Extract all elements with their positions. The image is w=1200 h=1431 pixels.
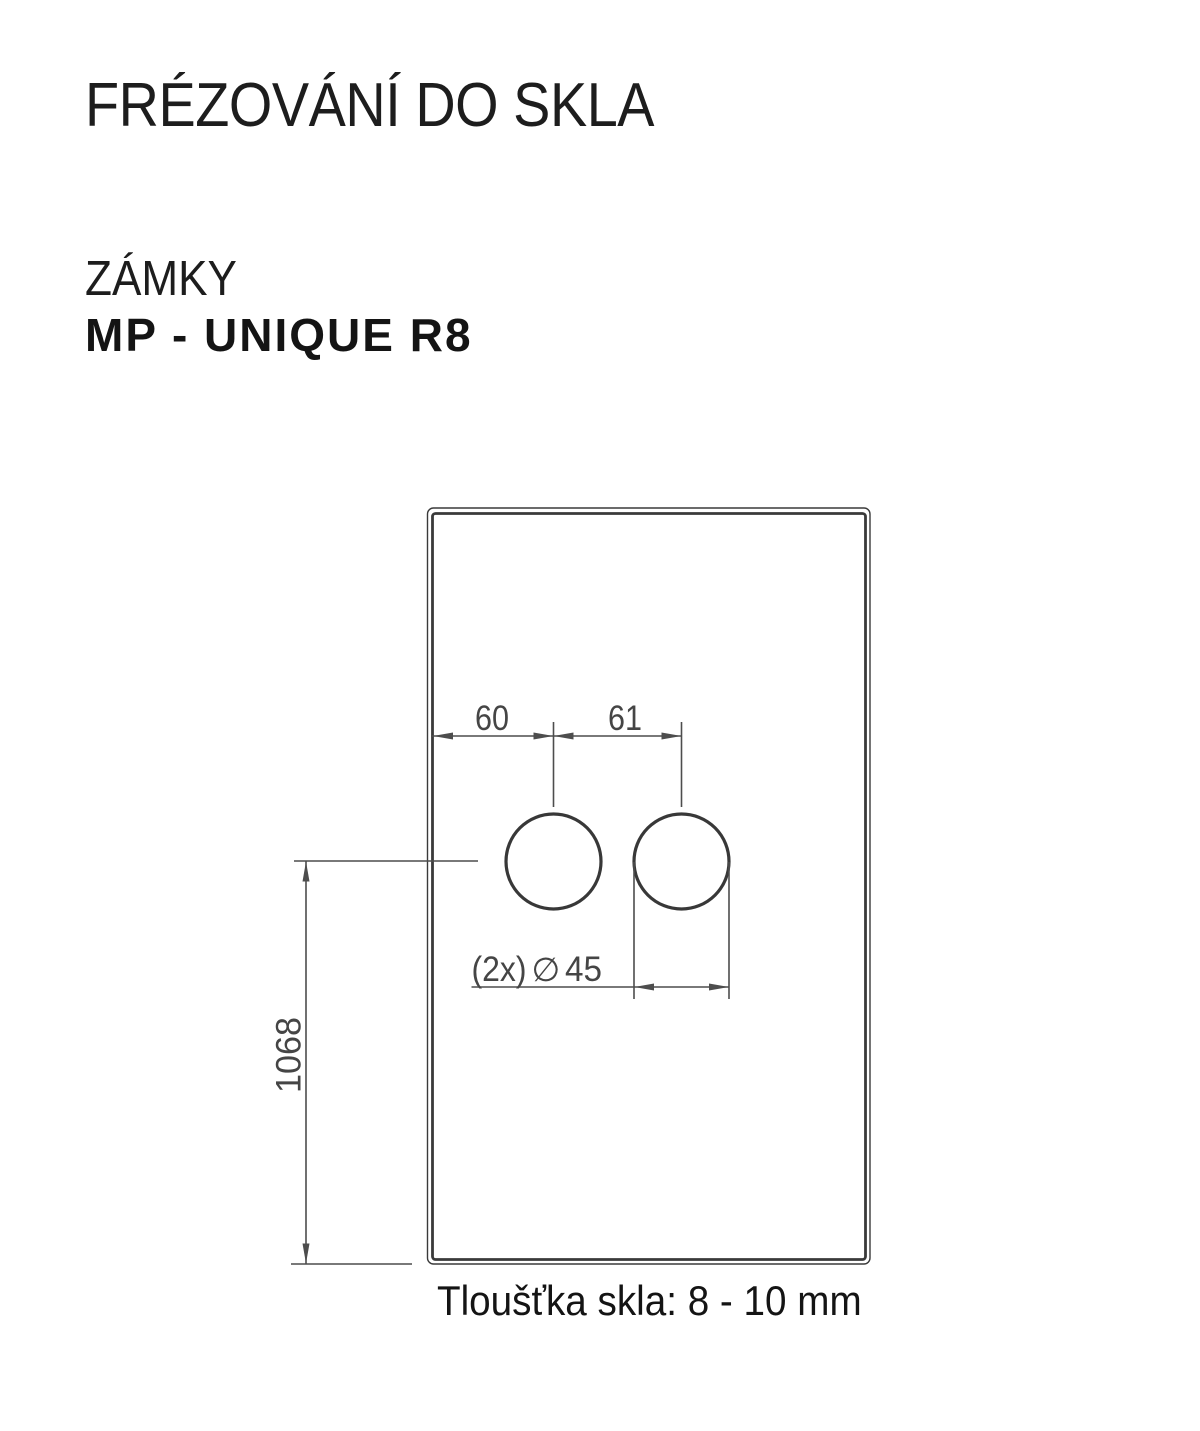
technical-drawing: 60 61 1068 (2x) ∅ 45	[0, 0, 1200, 1431]
dim-text-60: 60	[475, 699, 509, 738]
hole-left	[506, 814, 601, 909]
glass-thickness-note: Tloušťka skla: 8 - 10 mm	[437, 1280, 862, 1322]
dim-text-61: 61	[608, 699, 642, 738]
dim-text-1068: 1068	[270, 1017, 309, 1093]
hole-right	[634, 814, 729, 909]
hole-count-prefix: (2x)	[472, 950, 527, 989]
page: FRÉZOVÁNÍ DO SKLA ZÁMKY MP - UNIQUE R8	[0, 0, 1200, 1431]
hole-diameter-value: 45	[565, 950, 602, 989]
diameter-symbol: ∅	[532, 950, 561, 989]
arrow-down-at-bottom-edge	[303, 1244, 310, 1264]
hole-diameter-label: (2x) ∅ 45	[472, 950, 603, 989]
arrow-up-at-center-height	[303, 862, 310, 882]
